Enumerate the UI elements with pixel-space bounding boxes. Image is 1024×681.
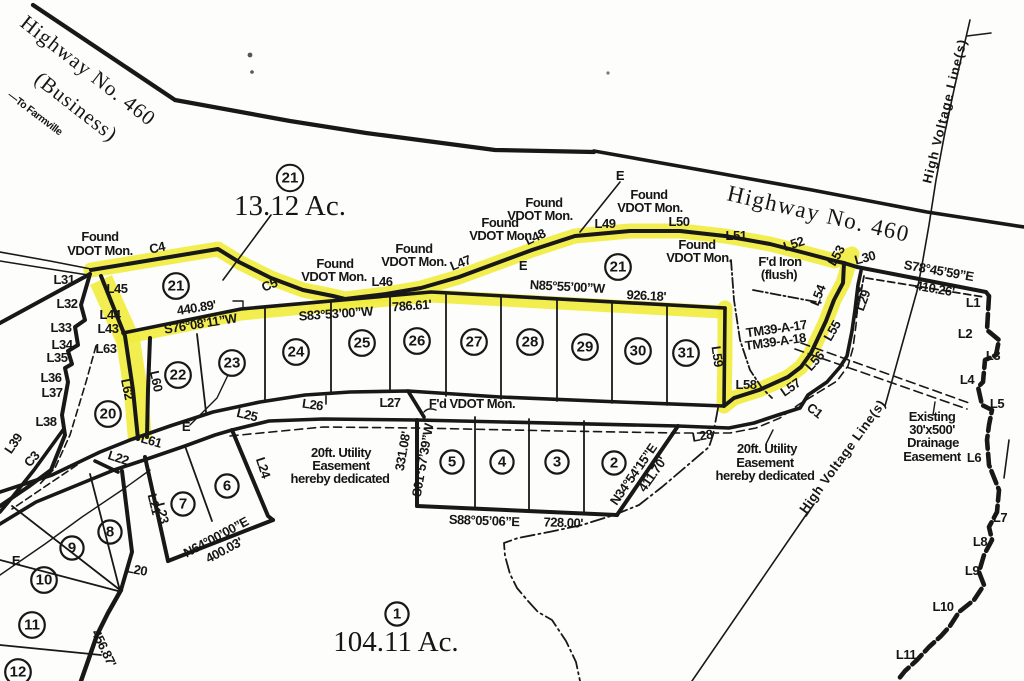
- svg-text:L26: L26: [301, 396, 324, 414]
- svg-text:28: 28: [522, 334, 539, 351]
- svg-text:7: 7: [179, 496, 187, 513]
- svg-text:12: 12: [10, 664, 27, 681]
- svg-text:L1: L1: [966, 295, 980, 310]
- svg-text:S88°05’06”E: S88°05’06”E: [449, 512, 521, 529]
- svg-text:30: 30: [630, 343, 647, 360]
- svg-text:hereby dedicated: hereby dedicated: [291, 471, 390, 486]
- svg-text:29: 29: [577, 339, 594, 356]
- svg-text:L4: L4: [960, 372, 975, 387]
- svg-text:9: 9: [68, 540, 76, 557]
- svg-text:21: 21: [282, 170, 299, 187]
- svg-text:VDOT Mon.: VDOT Mon.: [666, 250, 732, 265]
- svg-text:E: E: [519, 258, 528, 273]
- svg-text:L2: L2: [958, 326, 972, 341]
- svg-text:25: 25: [354, 335, 371, 352]
- svg-text:E: E: [182, 419, 191, 434]
- svg-text:786.61': 786.61': [392, 297, 433, 315]
- svg-text:L38: L38: [36, 414, 57, 429]
- svg-text:L7: L7: [993, 510, 1007, 525]
- svg-text:728.00': 728.00': [543, 514, 583, 530]
- svg-text:Drainage: Drainage: [907, 435, 959, 450]
- svg-text:VDOT Mon.: VDOT Mon.: [381, 254, 447, 269]
- svg-text:L58: L58: [736, 377, 757, 392]
- svg-text:L49: L49: [595, 216, 616, 231]
- svg-text:L59: L59: [709, 345, 727, 368]
- svg-text:VDOT Mon.: VDOT Mon.: [301, 269, 367, 284]
- svg-text:L37: L37: [42, 385, 63, 400]
- svg-text:L36: L36: [41, 370, 62, 385]
- svg-text:L11: L11: [896, 647, 916, 662]
- svg-text:20ft. Utility: 20ft. Utility: [737, 441, 798, 456]
- svg-text:L51: L51: [726, 228, 747, 243]
- svg-text:22: 22: [170, 367, 187, 384]
- svg-text:11: 11: [24, 617, 40, 634]
- svg-text:21: 21: [610, 259, 627, 276]
- svg-text:L33: L33: [51, 320, 72, 335]
- svg-text:1: 1: [393, 606, 401, 623]
- svg-text:L32: L32: [57, 296, 78, 311]
- svg-text:VDOT Mon.: VDOT Mon.: [617, 200, 683, 215]
- svg-text:104.11 Ac.: 104.11 Ac.: [333, 626, 458, 658]
- svg-text:13.12 Ac.: 13.12 Ac.: [234, 190, 346, 222]
- svg-text:20: 20: [100, 406, 117, 423]
- svg-text:21: 21: [168, 278, 185, 295]
- svg-text:23: 23: [224, 355, 241, 372]
- svg-text:L63: L63: [96, 341, 117, 356]
- svg-text:27: 27: [466, 334, 483, 351]
- svg-text:10: 10: [36, 572, 53, 589]
- svg-text:4: 4: [498, 454, 507, 471]
- svg-text:L45: L45: [107, 281, 128, 296]
- svg-text:L6: L6: [967, 450, 981, 465]
- svg-text:L9: L9: [965, 563, 979, 578]
- svg-text:24: 24: [288, 344, 305, 361]
- svg-text:L3: L3: [986, 348, 1000, 363]
- svg-text:Easement: Easement: [903, 449, 962, 464]
- svg-text:VDOT Mon.: VDOT Mon.: [67, 243, 133, 258]
- svg-text:31: 31: [678, 345, 695, 362]
- svg-text:L44: L44: [100, 307, 122, 322]
- svg-text:6: 6: [223, 478, 231, 495]
- svg-text:L35: L35: [47, 350, 68, 365]
- svg-text:L50: L50: [669, 214, 690, 229]
- svg-text:L8: L8: [973, 534, 987, 549]
- svg-text:F'd VDOT Mon.: F'd VDOT Mon.: [429, 396, 515, 411]
- svg-text:26: 26: [409, 333, 426, 350]
- svg-text:L43: L43: [98, 321, 119, 336]
- svg-text:926.18': 926.18': [626, 287, 666, 304]
- svg-text:L27: L27: [380, 395, 401, 410]
- svg-text:L5: L5: [990, 396, 1004, 411]
- svg-text:hereby dedicated: hereby dedicated: [716, 468, 815, 483]
- svg-text:Found: Found: [81, 229, 119, 244]
- svg-text:E: E: [616, 168, 625, 183]
- svg-text:5: 5: [448, 454, 456, 471]
- svg-text:L46: L46: [372, 274, 393, 289]
- svg-text:3: 3: [553, 454, 561, 471]
- svg-text:L10: L10: [933, 599, 954, 614]
- svg-text:(flush): (flush): [761, 267, 797, 282]
- svg-text:L31: L31: [54, 272, 75, 287]
- svg-text:8: 8: [106, 524, 114, 541]
- svg-text:2: 2: [610, 455, 618, 472]
- svg-text:E: E: [12, 553, 21, 568]
- svg-text:VDOT Mon.: VDOT Mon.: [507, 208, 573, 223]
